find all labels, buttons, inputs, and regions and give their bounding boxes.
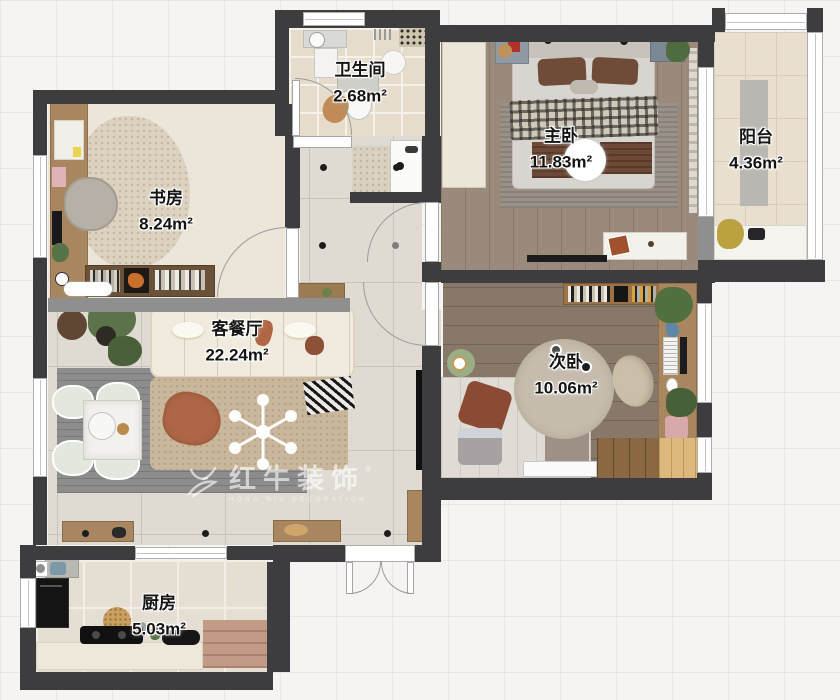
label-living-dining: 客餐厅 22.24m² (205, 317, 268, 370)
wall-balcony-bottom (698, 260, 825, 282)
master-pillow (591, 57, 638, 85)
ceiling-fan-icon (225, 394, 301, 470)
room-area: 11.83m² (530, 150, 592, 176)
wall-study-top (33, 90, 285, 104)
wall-bedroom2-right-1 (697, 283, 712, 303)
room-name: 主卧 (530, 124, 592, 150)
wall-kitchen-right (267, 562, 290, 672)
floor-lamp (452, 356, 467, 371)
dining-bowl (117, 423, 129, 435)
study-door-frame (286, 228, 299, 298)
wall-balcony-corner-tr (807, 8, 823, 32)
bedroom2-wardrobe-dark (597, 438, 659, 478)
window-living-left (33, 378, 47, 477)
entry-door-arc-right (381, 562, 413, 594)
slider-master-balcony (698, 67, 714, 217)
dining-lazy-susan (88, 412, 116, 440)
wall-bedroom2-right-2 (697, 403, 712, 437)
spotlight (202, 530, 209, 537)
laundry-mat (352, 146, 390, 192)
wall-kitchen-top-left (36, 546, 135, 560)
console-bread (284, 524, 308, 536)
desk-note (73, 147, 81, 157)
wall-hall-right-1 (422, 136, 441, 202)
watermark-brand-text: 红牛装饰® (229, 464, 378, 494)
shelf-books (632, 286, 656, 302)
wood-shelf-entry (407, 490, 423, 542)
wall-kitchen-left-1 (20, 545, 36, 578)
window-balcony-top (725, 13, 807, 30)
entry-door-arc-left (349, 562, 381, 594)
window-study-left (33, 155, 47, 258)
wall-balcony-corner-tl (712, 8, 725, 32)
wall-bathroom-right (425, 10, 440, 136)
wall-master-balcony-top (698, 42, 714, 67)
label-balcony: 阳台 4.36m² (729, 125, 783, 178)
burner (118, 631, 126, 639)
slider-kitchen (135, 547, 227, 559)
window-bathroom-top (303, 12, 365, 26)
bedroom2-wardrobe-light (659, 438, 697, 478)
wall-exterior-left-2 (33, 258, 47, 378)
window-kitchen-left (20, 578, 36, 628)
dishwasher (203, 620, 268, 668)
bull-logo-icon (185, 466, 221, 503)
spotlight (384, 530, 391, 537)
sofa-pillow-white (172, 322, 204, 338)
spotlight (320, 164, 327, 171)
wall-master-bottom (441, 270, 715, 283)
wall-master-top (440, 25, 715, 42)
room-area: 10.06m² (534, 376, 597, 402)
window-bedroom2-right-2 (697, 437, 712, 473)
room-name: 厨房 (132, 591, 186, 617)
mosaic-tiles (399, 28, 425, 47)
console-art (606, 233, 632, 258)
kitchen-counter (36, 642, 203, 670)
bookshelf-deco (155, 270, 205, 290)
wall-kitchen-top-right (227, 546, 273, 560)
shelf-books (568, 286, 610, 302)
floor-plan-canvas: { "page": {"type": "apartment-floor-plan… (0, 0, 840, 700)
nightstand-deco-round (498, 44, 512, 58)
master-small-pillow (570, 80, 598, 94)
wall-entry-left (273, 545, 345, 562)
desk-keyboard (52, 211, 62, 245)
bed-runner (600, 142, 652, 174)
half-wall-study-south (48, 298, 350, 312)
room-area: 4.36m² (729, 151, 783, 177)
entry-opening (345, 545, 415, 562)
desk-pink-pad (52, 167, 66, 187)
desk-blue-item (666, 322, 679, 337)
bedroom2-monitor (680, 337, 687, 374)
brand-watermark: 红牛装饰® HONG NIU DECORATION (185, 466, 378, 503)
wall-exterior-left-3 (33, 477, 47, 545)
desk-white-tray (64, 282, 112, 296)
bookshelf-art-flame (128, 273, 144, 288)
shelf-speaker (614, 286, 628, 302)
study-chair (64, 177, 118, 231)
wall-bedroom2-bottom (422, 478, 712, 500)
wall-exterior-left-1 (33, 104, 47, 155)
console-item-dot (648, 241, 654, 247)
master-curtain (689, 48, 697, 213)
fridge-handle (40, 585, 62, 587)
bench-item (112, 527, 126, 538)
room-area: 2.68m² (333, 84, 387, 110)
window-balcony-right (807, 32, 823, 260)
wall-entry-right (415, 545, 441, 562)
wall-kitchen-bottom (20, 672, 273, 690)
balcony-items (748, 228, 765, 240)
wall-hall-right-2 (422, 262, 441, 282)
room-area: 5.03m² (132, 617, 186, 643)
watermark-brand-subtext: HONG NIU DECORATION (229, 496, 378, 503)
room-name: 书房 (139, 186, 193, 212)
zebra-mat (303, 376, 355, 415)
water-heater-dial (36, 564, 45, 573)
side-table (57, 310, 87, 340)
laundry-item (405, 146, 418, 153)
master-door-frame (425, 202, 439, 262)
room-name: 阳台 (729, 125, 783, 151)
room-name: 客餐厅 (205, 317, 268, 343)
bedroom2-keyboard (663, 337, 678, 375)
bedroom2-pillow-gray (458, 428, 502, 465)
shower-fixture (374, 29, 392, 40)
burner (92, 631, 100, 639)
bathroom-sink (309, 32, 325, 48)
registered-mark: ® (365, 465, 378, 474)
master-wardrobe (442, 42, 486, 188)
bedroom2-door-frame (425, 282, 439, 346)
room-name: 卫生间 (333, 58, 387, 84)
bathroom-door-threshold (293, 136, 352, 148)
spotlight (82, 530, 89, 537)
wall-tv (416, 370, 422, 470)
wall-kitchen-left-2 (20, 628, 36, 672)
spotlight (319, 242, 326, 249)
kitchen-sink-bowl (50, 562, 66, 575)
sofa-pillow-terracotta (305, 336, 324, 355)
room-area: 8.24m² (139, 212, 193, 238)
room-area: 22.24m² (205, 343, 268, 369)
window-bedroom2-right-1 (697, 303, 712, 403)
desk-pink-mat (665, 416, 688, 439)
label-second-bedroom: 次卧 10.06m² (534, 350, 597, 403)
wall-hall-right-3 (422, 346, 441, 545)
master-headboard (512, 42, 655, 58)
bedroom2-bench (523, 461, 597, 477)
room-name: 次卧 (534, 350, 597, 376)
spotlight (393, 164, 400, 171)
label-study: 书房 8.24m² (139, 186, 193, 239)
label-kitchen: 厨房 5.03m² (132, 591, 186, 644)
label-bathroom: 卫生间 2.68m² (333, 58, 387, 111)
label-master-bedroom: 主卧 11.83m² (530, 124, 592, 177)
master-tv (527, 255, 607, 262)
